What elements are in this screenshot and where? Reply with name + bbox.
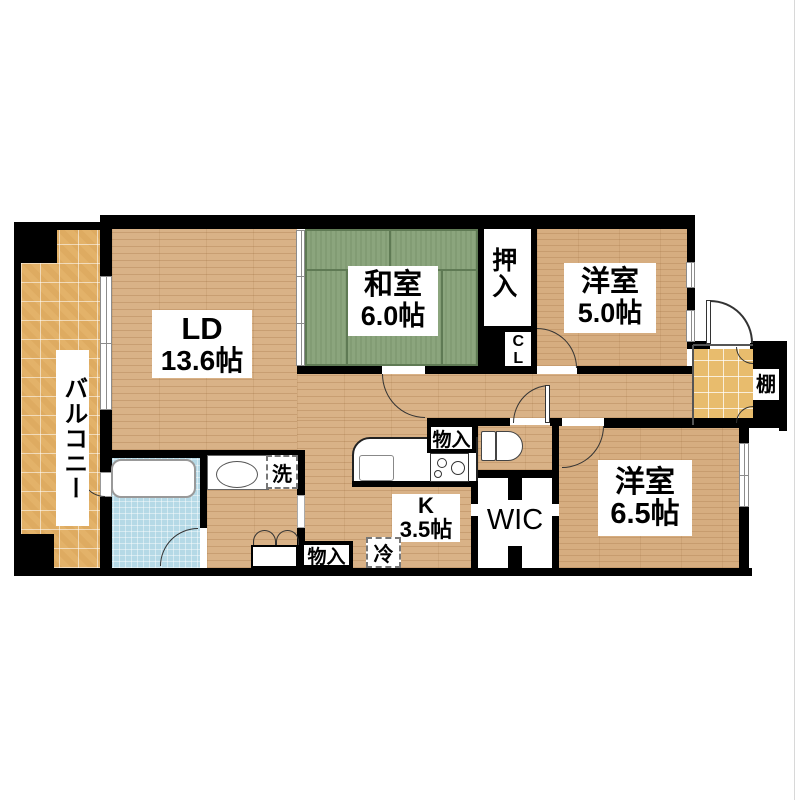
wall-bottom (14, 568, 752, 576)
shelf-label: 棚 (753, 369, 779, 400)
wic-opening-left (471, 504, 478, 516)
wic-stub-bottom (508, 546, 522, 568)
wall-top (100, 215, 694, 229)
room5-window-lower (686, 310, 695, 342)
room-size: 6.0帖 (361, 302, 426, 332)
room65-window (739, 443, 749, 507)
genkan-step-line (692, 345, 694, 425)
room-size: 13.6帖 (161, 346, 244, 377)
wall-wic-right (552, 418, 559, 568)
wall-bath-wash-divider (200, 458, 207, 528)
room-name: K (418, 494, 434, 518)
storage-hall-box: 物入 (427, 423, 476, 453)
floor-plan: バルコニー LD 13.6帖 和室 6.0帖 押入 CL 洋室 5.0帖 棚 洋… (0, 0, 800, 800)
room-size: 5.0帖 (578, 299, 643, 329)
room-name: LD (181, 312, 222, 346)
balcony-corner-block (14, 534, 54, 569)
living-dining-label: LD 13.6帖 (152, 310, 252, 378)
wall-room65-top (604, 418, 787, 428)
washbasin-bowl (216, 461, 258, 488)
toilet-tank (481, 431, 496, 461)
entrance-door-leaf (706, 300, 711, 344)
room-size: 3.5帖 (400, 518, 453, 542)
western-room-5-label: 洋室 5.0帖 (564, 263, 656, 333)
page-edge-line (794, 0, 795, 800)
room-name: 和室 (364, 270, 422, 302)
cl-label: CL (506, 333, 530, 366)
entrance-door-arc (710, 300, 753, 343)
western-room-65-label: 洋室 6.5帖 (598, 460, 692, 536)
balcony-window (100, 276, 112, 410)
wic-opening-right (552, 504, 559, 516)
room-name: 洋室 (615, 466, 675, 499)
oshiire-label: 押入 (486, 237, 518, 309)
wall-wash-hall-a (297, 458, 305, 495)
wall-left (14, 222, 21, 570)
washer-space-box: 洗 (266, 455, 298, 489)
japanese-room-label: 和室 6.0帖 (348, 266, 438, 336)
washroom-door-opening (297, 495, 305, 528)
wic-stub-top (508, 470, 522, 500)
wall-room5-bottom (577, 366, 694, 374)
wall-washitsu-bottom-b (425, 366, 478, 374)
balcony-label: バルコニー (56, 350, 89, 526)
washroom-closet (251, 545, 298, 568)
kitchen-label: K 3.5帖 (392, 494, 460, 542)
kitchen-sink (359, 455, 394, 481)
corridor-floor (297, 374, 693, 418)
wall-washitsu-bottom-a (297, 366, 382, 374)
storage-lower-box: 物入 (300, 541, 353, 569)
room-name: 洋室 (581, 267, 639, 299)
wall-cl-fill (484, 332, 505, 374)
balcony-corner-block (18, 229, 57, 263)
room-size: 6.5帖 (610, 499, 679, 531)
wic-label: WIC (479, 504, 551, 538)
washitsu-sliding-door (296, 230, 305, 366)
room5-window-upper (686, 262, 695, 288)
shelf-block-top (753, 349, 779, 369)
bathtub (111, 459, 196, 498)
tatami-seam (389, 229, 391, 271)
toilet-door-leaf (545, 385, 550, 423)
fridge-space-box: 冷 (366, 537, 401, 568)
tatami-seam (441, 271, 443, 366)
stove (430, 453, 469, 482)
genkan-step-line (693, 344, 753, 346)
